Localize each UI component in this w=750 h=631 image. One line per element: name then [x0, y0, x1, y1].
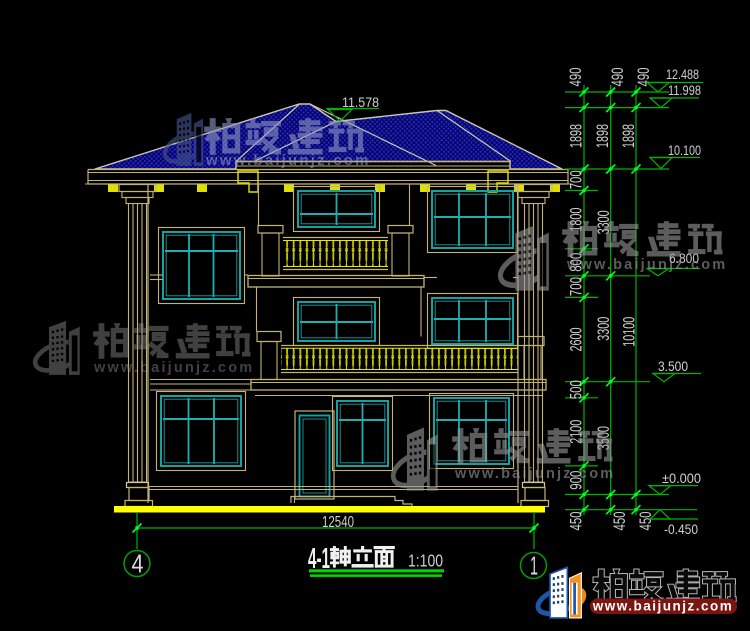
svg-text:1898: 1898: [568, 124, 586, 148]
svg-text:3300: 3300: [595, 317, 613, 341]
svg-text:www.baijunjz.com: www.baijunjz.com: [205, 152, 371, 169]
svg-text:490: 490: [567, 68, 585, 87]
svg-text:1:100: 1:100: [408, 551, 443, 571]
svg-text:12540: 12540: [322, 514, 354, 531]
svg-text:10100: 10100: [621, 317, 639, 347]
svg-text:700: 700: [568, 277, 586, 296]
svg-text:12.488: 12.488: [666, 67, 699, 82]
svg-text:1: 1: [530, 551, 538, 581]
svg-text:www.baijunjz.com: www.baijunjz.com: [93, 360, 254, 376]
svg-text:±0.000: ±0.000: [662, 471, 701, 486]
svg-text:1898: 1898: [620, 124, 638, 148]
svg-text:700: 700: [568, 170, 586, 189]
svg-text:490: 490: [609, 68, 627, 87]
svg-text:2600: 2600: [568, 328, 586, 352]
svg-text:10.100: 10.100: [668, 143, 701, 158]
svg-text:11.578: 11.578: [342, 95, 379, 110]
svg-text:450: 450: [637, 512, 655, 531]
svg-text:1898: 1898: [594, 124, 612, 148]
svg-text:4: 4: [132, 549, 144, 579]
svg-text:www.baijunjz.com: www.baijunjz.com: [454, 466, 615, 482]
svg-text:www.baijunjz.com: www.baijunjz.com: [566, 257, 727, 273]
svg-text:www.baijunjz.com: www.baijunjz.com: [592, 599, 734, 614]
svg-text:11.998: 11.998: [668, 83, 701, 98]
svg-text:450: 450: [568, 512, 586, 531]
svg-text:3.500: 3.500: [658, 359, 688, 374]
svg-text:500: 500: [568, 380, 586, 399]
svg-text:450: 450: [611, 512, 629, 531]
svg-text:490: 490: [635, 68, 653, 87]
svg-text:-0.450: -0.450: [664, 522, 698, 537]
